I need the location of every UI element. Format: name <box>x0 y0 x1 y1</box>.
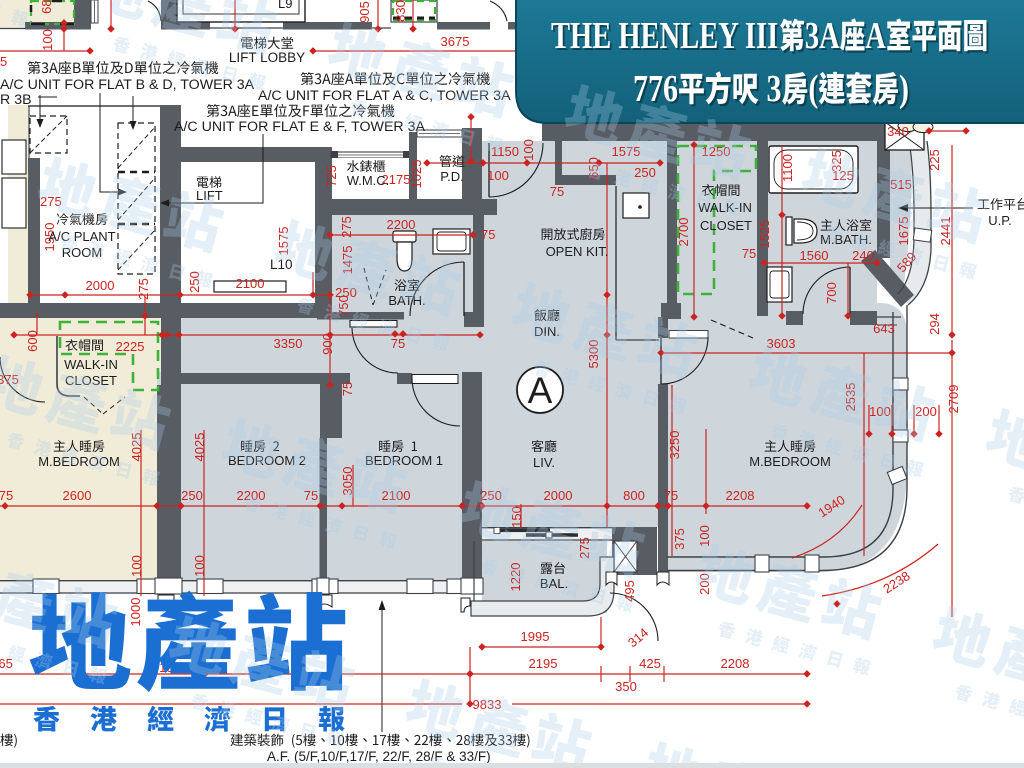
svg-text:A/C UNIT FOR FLAT B & D, TOWE: A/C UNIT FOR FLAT B & D, TOWER 3A <box>0 77 255 93</box>
svg-text:A: A <box>865 15 886 57</box>
svg-text:250: 250 <box>181 488 203 503</box>
svg-text:100: 100 <box>129 555 144 577</box>
svg-text:600: 600 <box>25 330 40 352</box>
svg-text:P.D.: P.D. <box>440 169 464 184</box>
svg-text:250: 250 <box>634 165 656 180</box>
svg-text:725: 725 <box>324 165 339 187</box>
svg-text:A.F. (5/F,10/F,17/F, 22/F, 28/: A.F. (5/F,10/F,17/F, 22/F, 28/F & 33/F) <box>267 749 491 764</box>
svg-text:75: 75 <box>742 246 756 261</box>
svg-text:75: 75 <box>481 227 495 242</box>
svg-text:A/C PLANT: A/C PLANT <box>48 229 115 244</box>
svg-text:75: 75 <box>340 382 355 396</box>
svg-text:275: 275 <box>339 216 354 238</box>
svg-text:100: 100 <box>697 525 712 547</box>
svg-text:643: 643 <box>873 321 895 336</box>
svg-text:830: 830 <box>393 0 408 22</box>
svg-text:1560: 1560 <box>800 248 829 263</box>
svg-text:75: 75 <box>391 336 405 351</box>
svg-text:800: 800 <box>623 488 645 503</box>
svg-text:225: 225 <box>927 149 942 171</box>
svg-text:2000: 2000 <box>86 278 115 293</box>
svg-text:100: 100 <box>192 555 207 577</box>
svg-text:): ) <box>899 68 909 110</box>
svg-text:3250: 3250 <box>667 431 682 460</box>
svg-text:294: 294 <box>927 313 942 335</box>
svg-text:LIV.: LIV. <box>533 455 555 470</box>
svg-text:75: 75 <box>0 488 13 503</box>
svg-text:2208: 2208 <box>721 656 750 671</box>
svg-text:R 3B: R 3B <box>0 92 32 108</box>
svg-text:425: 425 <box>639 656 661 671</box>
svg-text:100: 100 <box>487 168 509 183</box>
svg-text:340: 340 <box>887 124 909 139</box>
svg-text:CLOSET: CLOSET <box>700 218 752 233</box>
svg-text:3675: 3675 <box>441 34 470 49</box>
svg-text:900: 900 <box>320 333 335 355</box>
svg-text:OPEN KIT.: OPEN KIT. <box>546 244 609 259</box>
svg-text:2600: 2600 <box>63 488 92 503</box>
svg-text:2225: 2225 <box>116 339 145 354</box>
svg-text:3: 3 <box>767 68 782 110</box>
svg-text:100: 100 <box>521 139 536 161</box>
svg-text:2000: 2000 <box>544 488 573 503</box>
svg-text:2195: 2195 <box>529 656 558 671</box>
svg-text:M.BEDROOM: M.BEDROOM <box>38 454 120 469</box>
svg-text:700: 700 <box>824 282 839 304</box>
svg-text:350: 350 <box>615 679 637 694</box>
svg-text:A: A <box>528 370 553 411</box>
svg-text:776: 776 <box>633 68 678 110</box>
svg-text:W.M.C.: W.M.C. <box>347 173 390 188</box>
svg-text:275: 275 <box>136 278 151 300</box>
svg-text:LIFT LOBBY: LIFT LOBBY <box>229 50 305 65</box>
svg-text:680: 680 <box>39 0 54 14</box>
svg-text:2700: 2700 <box>676 218 691 247</box>
svg-text:1100: 1100 <box>780 154 795 182</box>
svg-text:2208: 2208 <box>726 488 755 503</box>
svg-text:1995: 1995 <box>521 629 550 644</box>
svg-text:2100: 2100 <box>236 276 265 291</box>
svg-text:3350: 3350 <box>274 336 303 351</box>
svg-text:1025: 1025 <box>409 160 424 189</box>
svg-text:A/C UNIT FOR FLAT E & F, TOWE: A/C UNIT FOR FLAT E & F, TOWER 3A <box>174 119 425 135</box>
svg-text:1000: 1000 <box>128 598 143 627</box>
svg-text:1525: 1525 <box>757 220 772 249</box>
svg-text:375: 375 <box>672 528 687 550</box>
svg-text:3A: 3A <box>805 15 840 57</box>
svg-text:U.P.: U.P. <box>988 213 1012 228</box>
svg-text:75: 75 <box>664 488 678 503</box>
svg-text:75: 75 <box>0 54 7 69</box>
svg-text:THE HENLEY III: THE HENLEY III <box>551 15 778 57</box>
svg-text:75: 75 <box>550 184 564 199</box>
svg-text:M.BEDROOM: M.BEDROOM <box>749 454 831 469</box>
svg-text:905: 905 <box>357 1 372 23</box>
svg-text:L9: L9 <box>278 0 292 11</box>
svg-text:4025: 4025 <box>192 433 207 462</box>
svg-text:2200: 2200 <box>387 217 416 232</box>
svg-text:2709: 2709 <box>946 385 961 414</box>
svg-text:100: 100 <box>40 29 55 51</box>
svg-text:(: ( <box>808 68 818 110</box>
svg-text:WALK-IN: WALK-IN <box>64 357 118 372</box>
